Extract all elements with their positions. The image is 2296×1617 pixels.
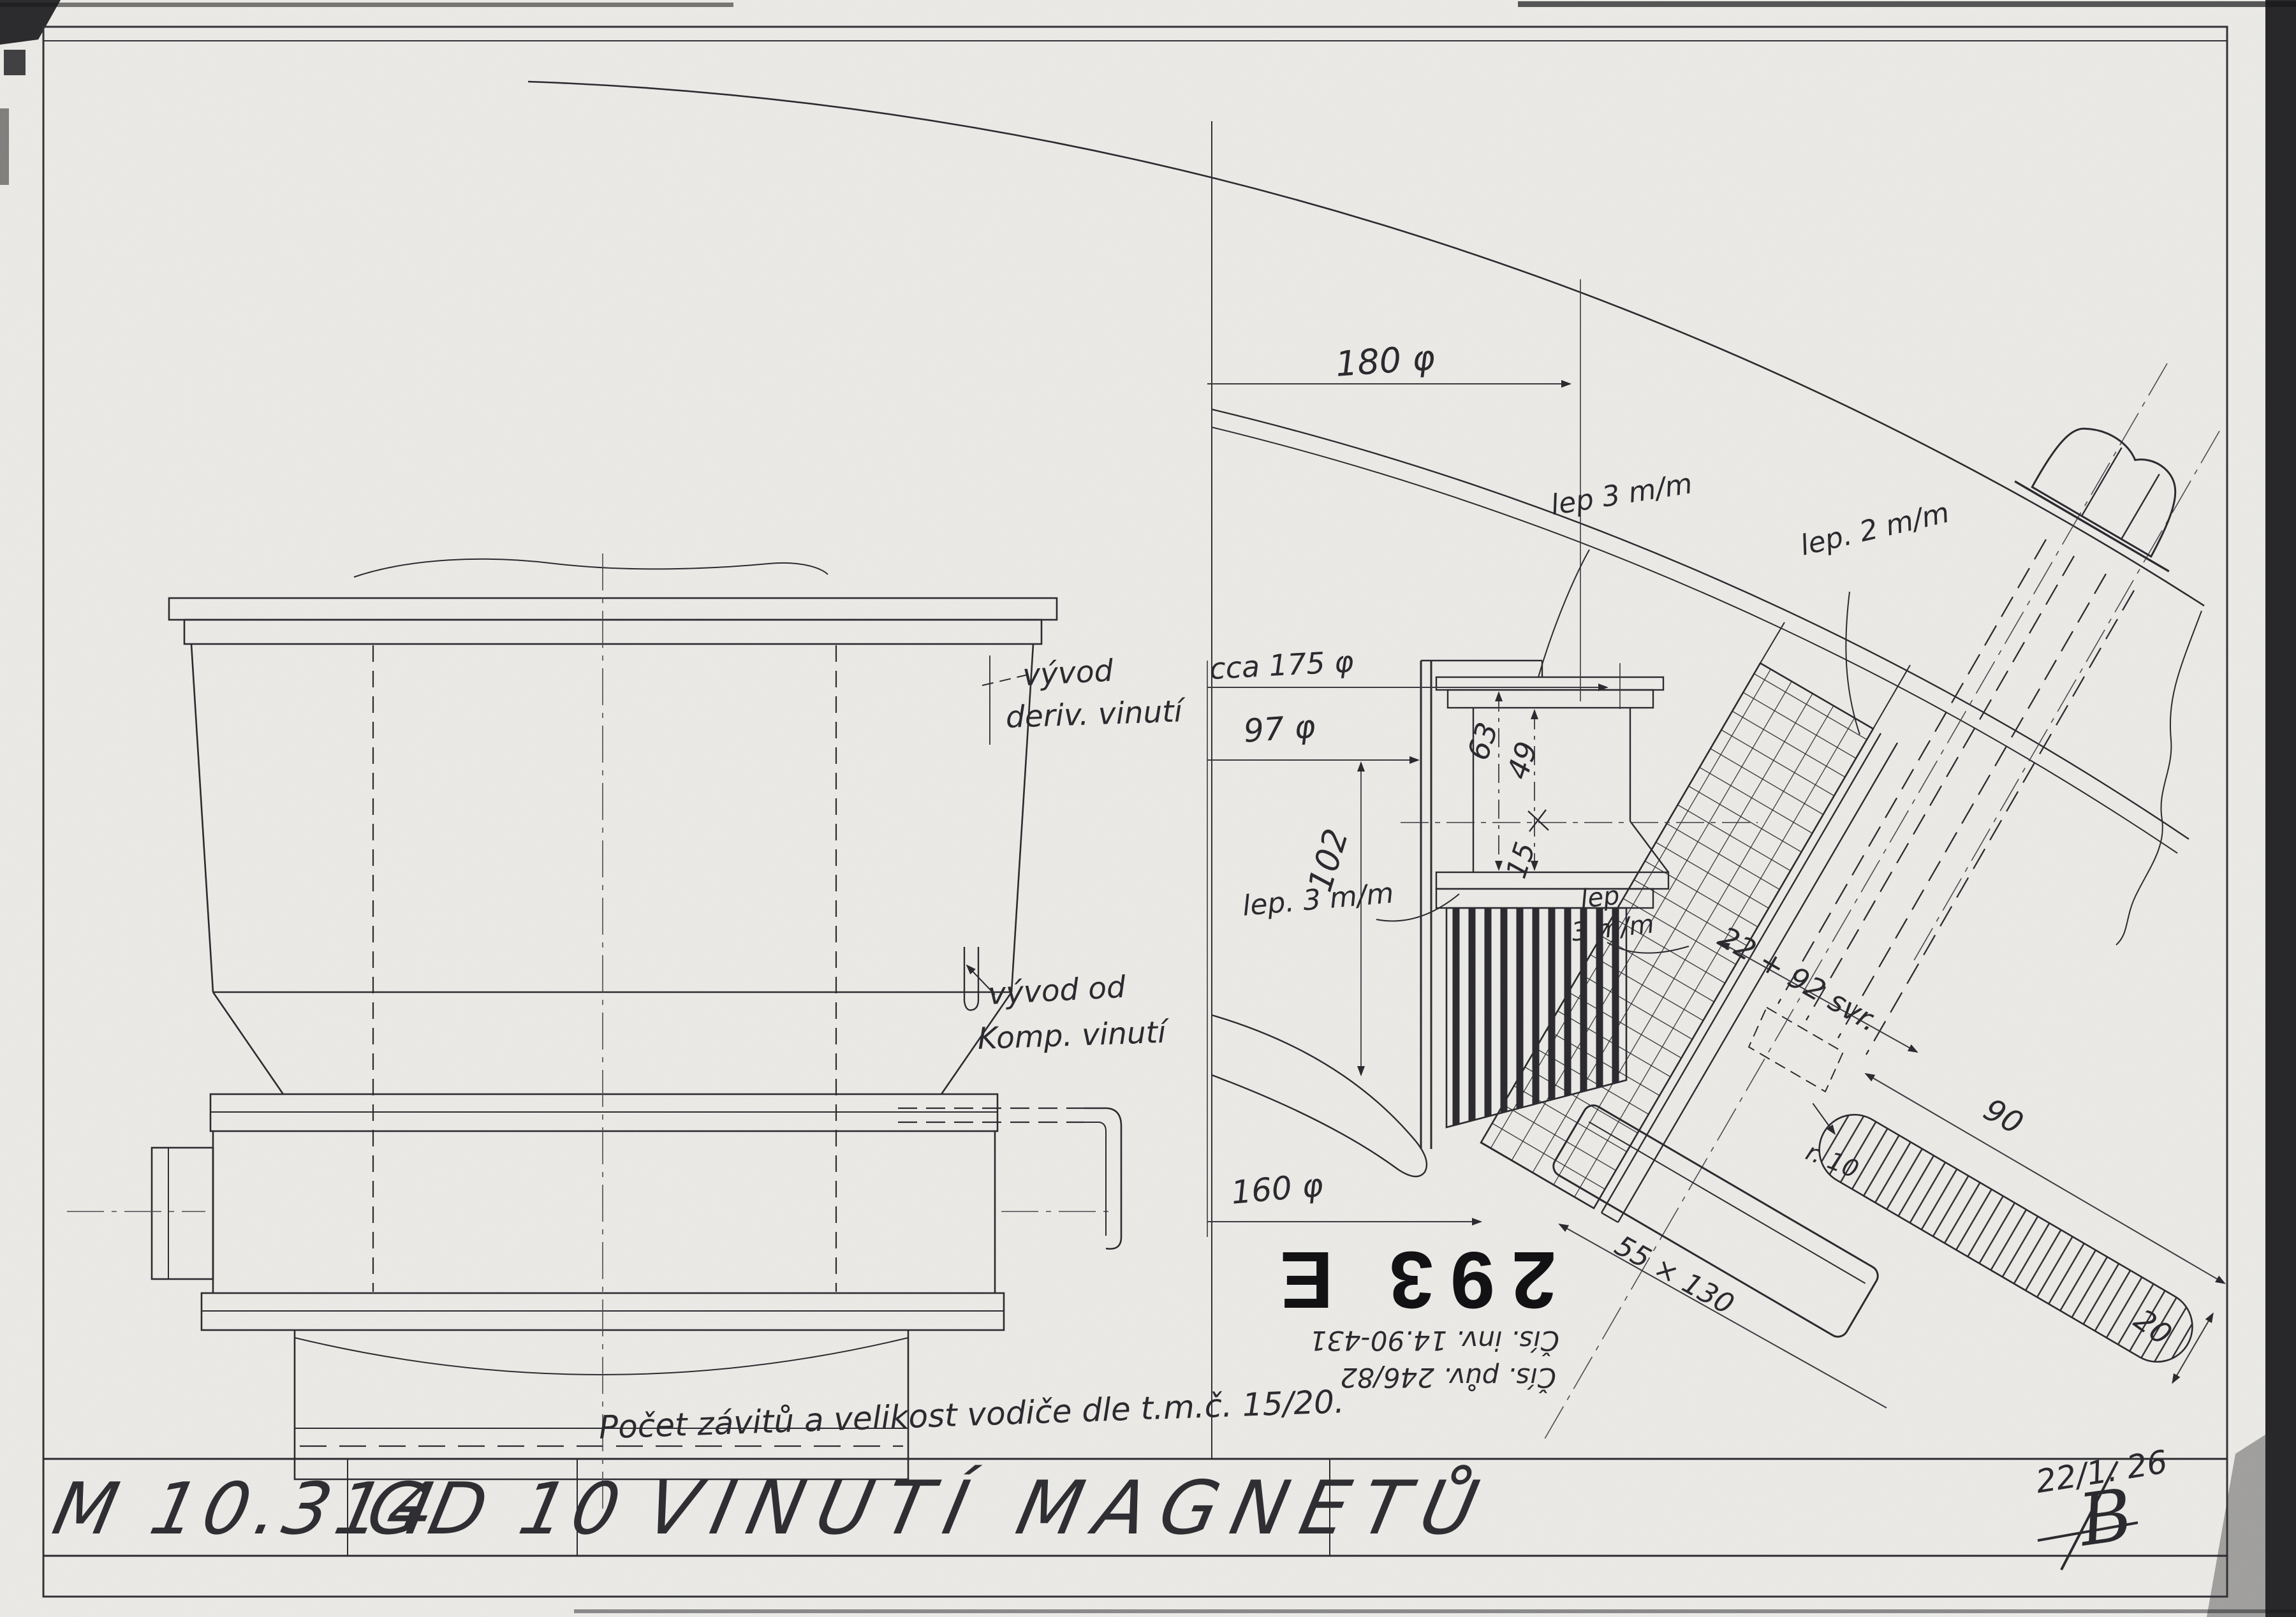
- label-derivation-line1: vývod: [1022, 654, 1114, 693]
- note-glue3-small-line1: lep: [1579, 881, 1621, 914]
- dim-dia-97: 97 φ: [1242, 708, 1316, 750]
- technical-drawing-canvas: [0, 0, 2296, 1617]
- paper-texture: [0, 0, 2296, 1617]
- drawing-sheet: vývod deriv. vinutí vývod od Komp. vinut…: [0, 0, 2296, 1617]
- title-drawing-title: VINUTÍ MAGNETŮ: [638, 1465, 1499, 1551]
- label-derivation-line2: deriv. vinutí: [1005, 694, 1183, 735]
- dim-dia-180: 180 φ: [1334, 337, 1436, 384]
- label-compensation-line2: Komp. vinutí: [977, 1015, 1166, 1057]
- stamp-number: 293 E: [1339, 1234, 1556, 1326]
- stamp-inventory-line: Čís. inv. 14.90-431: [1272, 1325, 1559, 1356]
- label-compensation-line1: vývod od: [987, 970, 1126, 1012]
- title-model-code: GD 10: [360, 1468, 633, 1551]
